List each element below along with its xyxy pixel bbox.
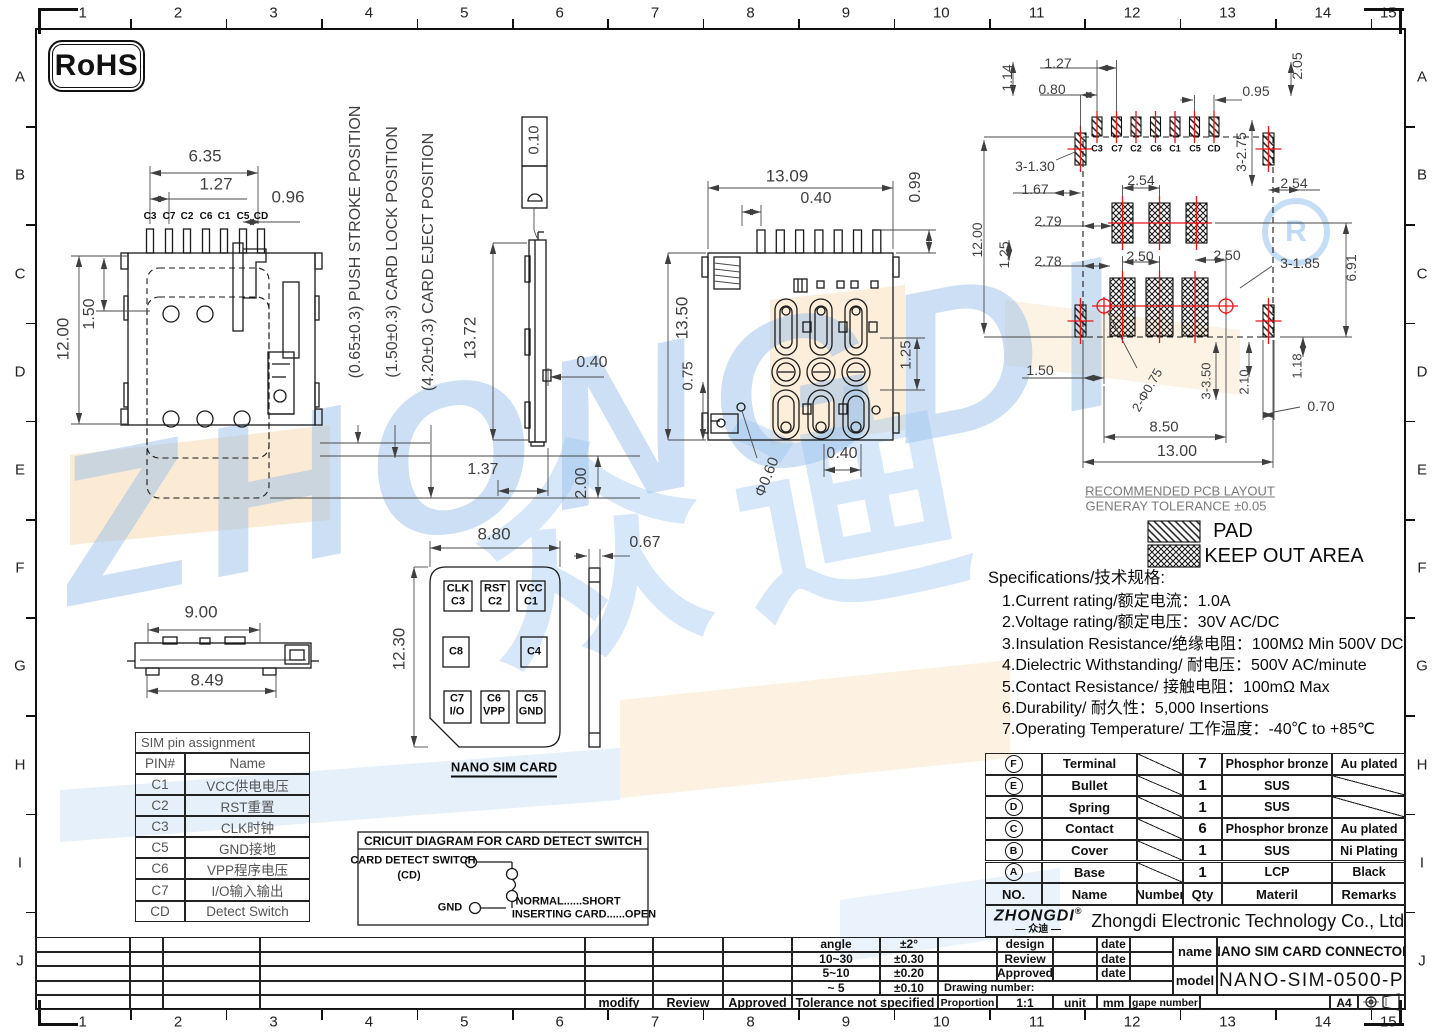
sim-pin-cell: PIN# xyxy=(135,753,185,774)
parts-remarks xyxy=(1332,796,1406,818)
unit-value: mm xyxy=(1097,995,1130,1010)
sim-pin-cell: C1 xyxy=(135,774,185,795)
spec-item: 4.Dielectric Withstanding/ 耐电压：500V AC/m… xyxy=(988,655,1418,676)
unit-label: unit xyxy=(1053,995,1097,1010)
revision-cell xyxy=(35,937,130,952)
parts-header: NO. xyxy=(985,883,1042,905)
parts-header: Number xyxy=(1137,883,1183,905)
parts-qty: 1 xyxy=(1183,796,1222,818)
parts-qty: 7 xyxy=(1183,753,1222,775)
revision-cell xyxy=(130,995,163,1010)
parts-qty: 6 xyxy=(1183,818,1222,840)
sim-pin-cell: C7 xyxy=(135,879,185,901)
parts-name: Spring xyxy=(1042,796,1137,818)
tolerance-range: 5~10 xyxy=(792,966,880,981)
parts-number xyxy=(1137,862,1183,884)
sim-pin-cell: VCC供电电压 xyxy=(185,774,310,795)
revision-cell xyxy=(260,937,585,952)
spec-item: 6.Durability/ 耐久性：5,000 Insertions xyxy=(988,698,1418,719)
revision-cell xyxy=(585,952,653,967)
revision-cell xyxy=(723,937,792,952)
title-cell: Review xyxy=(997,952,1053,967)
spec-item: 7.Operating Temperature/ 工作温度：-40℃ to +8… xyxy=(988,719,1418,740)
parts-remarks xyxy=(1332,775,1406,797)
paper-size: A4 xyxy=(1330,995,1358,1010)
title-cell xyxy=(1053,937,1097,952)
sim-pin-cell: C6 xyxy=(135,858,185,879)
company-row: ZHONGDI®— 众迪 —Zhongdi Electronic Technol… xyxy=(985,905,1406,937)
parts-no: D xyxy=(985,796,1042,818)
drawing-sheet: ZHONGDI 众迪 R 6.351.270.96C3C7C2C6C1C5CD1… xyxy=(0,0,1441,1033)
sim-pin-cell: GND接地 xyxy=(185,837,310,858)
company-logo: ZHONGDI®— 众迪 — xyxy=(986,907,1090,935)
parts-remarks: Ni Plating xyxy=(1332,840,1406,862)
drawing-number-label: Drawing number: xyxy=(938,981,1173,996)
parts-qty: 1 xyxy=(1183,840,1222,862)
rohs-badge: RoHS xyxy=(48,40,145,92)
specs-title: Specifications/技术规格: xyxy=(988,564,1418,588)
revision-cell xyxy=(130,981,163,996)
revision-cell xyxy=(723,952,792,967)
parts-no: A xyxy=(985,862,1042,884)
parts-material: Phosphor bronze xyxy=(1222,818,1332,840)
specifications: Specifications/技术规格: 1.Current rating/额定… xyxy=(988,564,1418,741)
title-cell: Approved xyxy=(997,966,1053,981)
tolerance-range: ~ 5 xyxy=(792,981,880,996)
parts-number xyxy=(1137,796,1183,818)
tolerance-value: ±0.20 xyxy=(880,966,938,981)
revision-cell xyxy=(130,937,163,952)
revision-cell xyxy=(653,981,723,996)
revision-cell xyxy=(163,937,260,952)
specs-items: 1.Current rating/额定电流：1.0A2.Voltage rati… xyxy=(988,591,1418,741)
tolerance-value: ±0.10 xyxy=(880,981,938,996)
parts-no: C xyxy=(985,818,1042,840)
parts-material: Phosphor bronze xyxy=(1222,753,1332,775)
sim-pin-cell: Detect Switch xyxy=(185,901,310,922)
parts-header: Name xyxy=(1042,883,1137,905)
parts-no: F xyxy=(985,753,1042,775)
parts-name: Bullet xyxy=(1042,775,1137,797)
sim-pin-cell: VPP程序电压 xyxy=(185,858,310,879)
tolerance-value: ±0.30 xyxy=(880,952,938,967)
parts-number xyxy=(1137,818,1183,840)
gape-number-value xyxy=(1200,995,1330,1010)
sim-pin-cell: CLK时钟 xyxy=(185,816,310,837)
revision-cell xyxy=(35,981,130,996)
spec-item: 5.Contact Resistance/ 接触电阻：100mΩ Max xyxy=(988,677,1418,698)
title-cell: design xyxy=(997,937,1053,952)
parts-material: LCP xyxy=(1222,862,1332,884)
title-cell xyxy=(1130,937,1173,952)
parts-number xyxy=(1137,840,1183,862)
revision-cell xyxy=(723,981,792,996)
revision-cell xyxy=(585,937,653,952)
spec-item: 1.Current rating/额定电流：1.0A xyxy=(988,591,1418,612)
parts-qty: 1 xyxy=(1183,775,1222,797)
sim-pin-cell: C5 xyxy=(135,837,185,858)
parts-remarks: Au plated xyxy=(1332,753,1406,775)
sim-pin-cell: RST重置 xyxy=(185,795,310,816)
part-name: NANO SIM CARD CONNECTOR xyxy=(1217,937,1406,966)
revision-cell xyxy=(653,966,723,981)
tolerance-range: 10~30 xyxy=(792,952,880,967)
tolerance-footer: Tolerance not specified xyxy=(792,995,938,1010)
sim-pin-title: SIM pin assignment xyxy=(135,732,310,753)
model-number: NANO-SIM-0500-P xyxy=(1217,966,1406,995)
revision-cell xyxy=(163,995,260,1010)
revision-cell xyxy=(260,981,585,996)
title-cell xyxy=(938,952,997,967)
title-cell xyxy=(1053,952,1097,967)
tolerance-value: ±2° xyxy=(880,937,938,952)
proportion-label: Proportion xyxy=(938,995,997,1010)
parts-name: Contact xyxy=(1042,818,1137,840)
revision-cell xyxy=(653,952,723,967)
sim-pin-cell: CD xyxy=(135,901,185,922)
proportion-value: 1:1 xyxy=(997,995,1053,1010)
revision-cell xyxy=(35,995,130,1010)
parts-number xyxy=(1137,775,1183,797)
parts-no: B xyxy=(985,840,1042,862)
parts-name: Terminal xyxy=(1042,753,1137,775)
sim-pin-cell: C3 xyxy=(135,816,185,837)
revision-cell xyxy=(130,966,163,981)
revision-cell xyxy=(163,981,260,996)
title-cell xyxy=(1130,952,1173,967)
parts-header: Remarks xyxy=(1332,883,1406,905)
projection-symbol-cell xyxy=(1358,995,1406,1010)
parts-name: Base xyxy=(1042,862,1137,884)
parts-material: SUS xyxy=(1222,775,1332,797)
revision-cell xyxy=(723,966,792,981)
review-label: Review xyxy=(653,995,723,1010)
revision-cell xyxy=(653,937,723,952)
tolerance-range: angle xyxy=(792,937,880,952)
revision-cell xyxy=(260,952,585,967)
sim-pin-cell: I/O输入输出 xyxy=(185,879,310,901)
title-cell xyxy=(1130,966,1173,981)
model-label: model xyxy=(1173,966,1217,995)
parts-material: SUS xyxy=(1222,840,1332,862)
revision-cell xyxy=(35,966,130,981)
title-cell xyxy=(938,966,997,981)
revision-cell xyxy=(163,966,260,981)
parts-header: Qty xyxy=(1183,883,1222,905)
revision-cell xyxy=(585,981,653,996)
parts-name: Cover xyxy=(1042,840,1137,862)
sim-pin-cell: Name xyxy=(185,753,310,774)
rohs-label: RoHS xyxy=(52,44,141,88)
sim-pin-cell: C2 xyxy=(135,795,185,816)
parts-material: SUS xyxy=(1222,796,1332,818)
company-name: Zhongdi Electronic Technology Co., Ltd xyxy=(1090,911,1405,932)
title-cell xyxy=(1053,966,1097,981)
title-cell xyxy=(938,937,997,952)
title-cell: date xyxy=(1097,952,1130,967)
revision-cell xyxy=(260,995,585,1010)
revision-cell xyxy=(260,966,585,981)
revision-cell xyxy=(35,952,130,967)
parts-no: E xyxy=(985,775,1042,797)
parts-qty: 1 xyxy=(1183,862,1222,884)
approved-label: Approved xyxy=(723,995,792,1010)
title-cell: date xyxy=(1097,937,1130,952)
revision-cell xyxy=(163,952,260,967)
revision-cell xyxy=(130,952,163,967)
parts-header: Materil xyxy=(1222,883,1332,905)
parts-remarks: Black xyxy=(1332,862,1406,884)
gape-number-label: gape number xyxy=(1130,995,1200,1010)
modify-label: modify xyxy=(585,995,653,1010)
spec-item: 2.Voltage rating/额定电压：30V AC/DC xyxy=(988,612,1418,633)
spec-item: 3.Insulation Resistance/绝缘电阻：100MΩ Min 5… xyxy=(988,634,1418,655)
revision-cell xyxy=(585,966,653,981)
parts-remarks: Au plated xyxy=(1332,818,1406,840)
parts-number xyxy=(1137,753,1183,775)
name-label: name xyxy=(1173,937,1217,966)
title-cell: date xyxy=(1097,966,1130,981)
tables-layer: SIM pin assignmentPIN#NameC1VCC供电电压C2RST… xyxy=(0,0,1441,1033)
